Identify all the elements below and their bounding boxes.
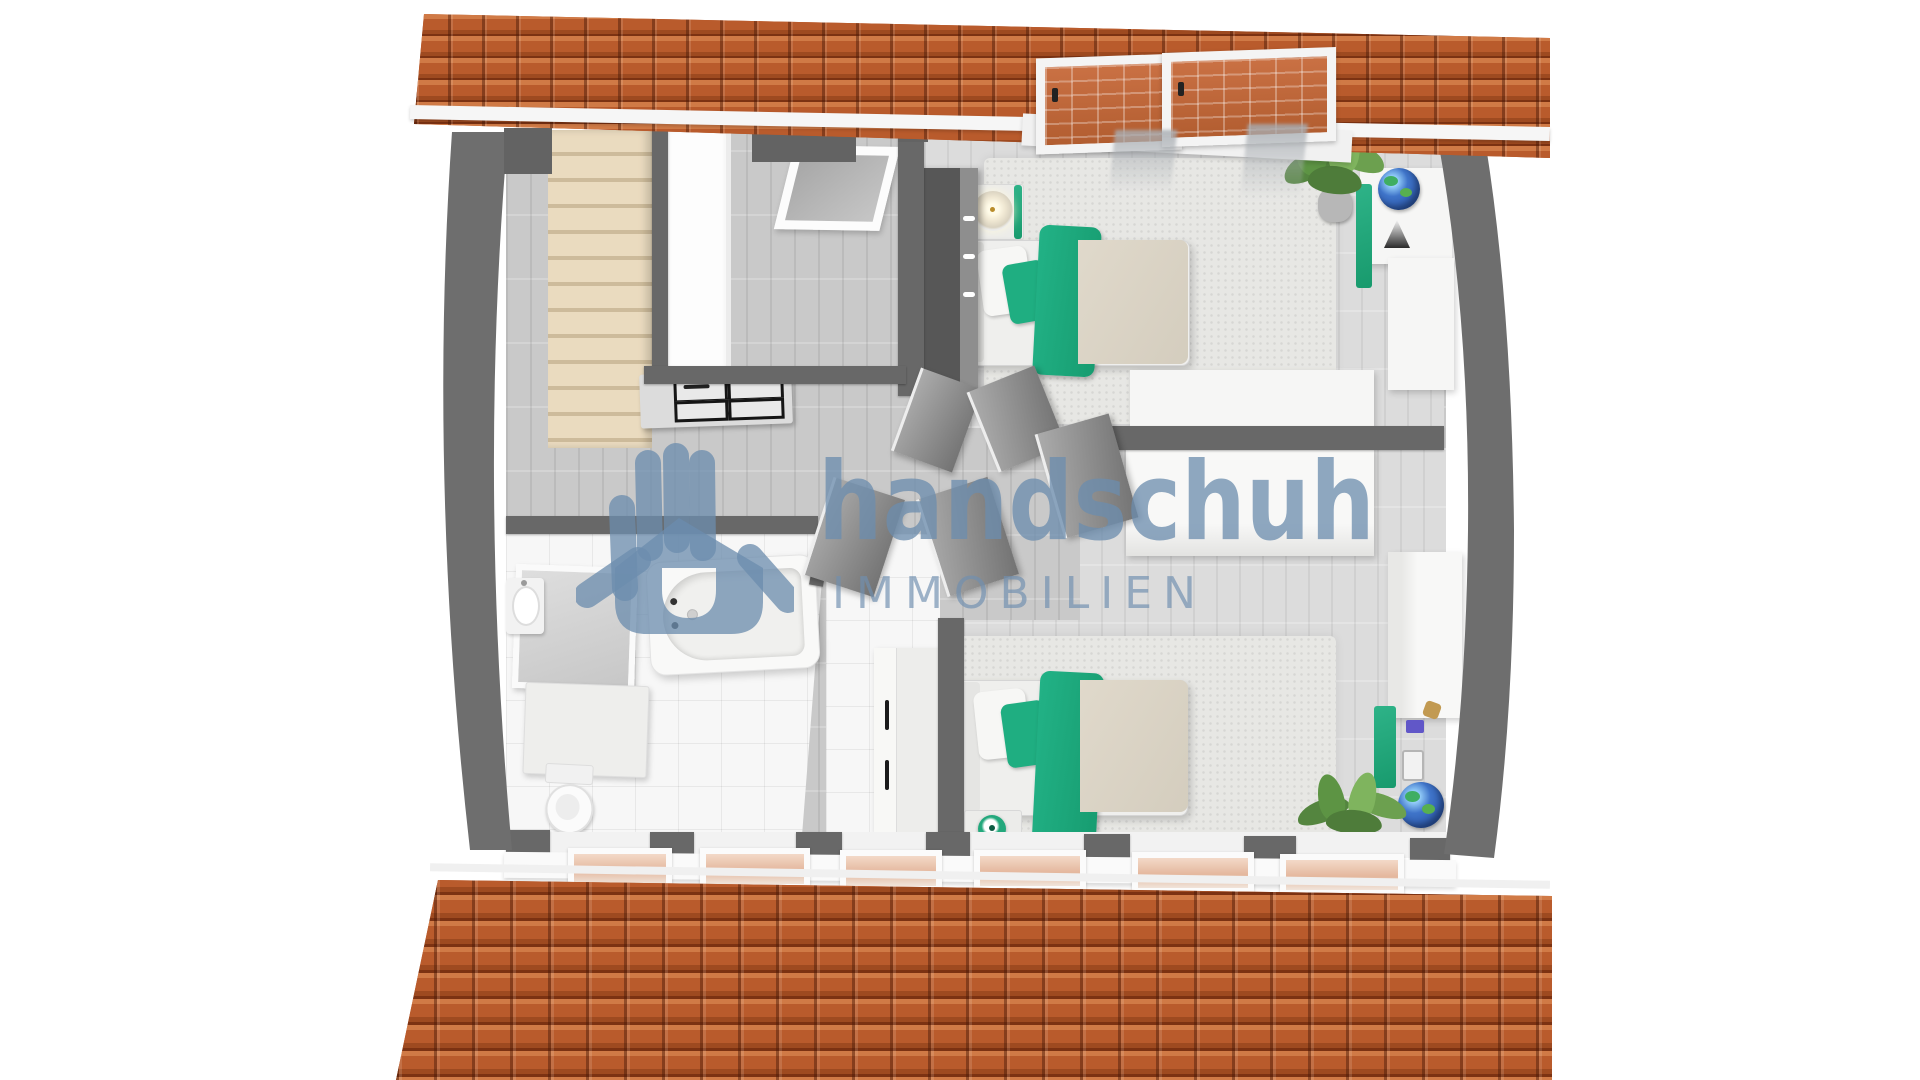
roof-window (1280, 854, 1404, 896)
roof-bottom (396, 866, 1552, 1080)
floor-plan-rendering: handschuh IMMOBILIEN (0, 0, 1920, 1080)
roof-window (974, 850, 1086, 892)
curtain (1109, 130, 1178, 192)
window-handle (1052, 88, 1058, 102)
window-handle (1178, 82, 1184, 96)
curtain (1240, 124, 1308, 198)
roof-window (1132, 852, 1254, 894)
